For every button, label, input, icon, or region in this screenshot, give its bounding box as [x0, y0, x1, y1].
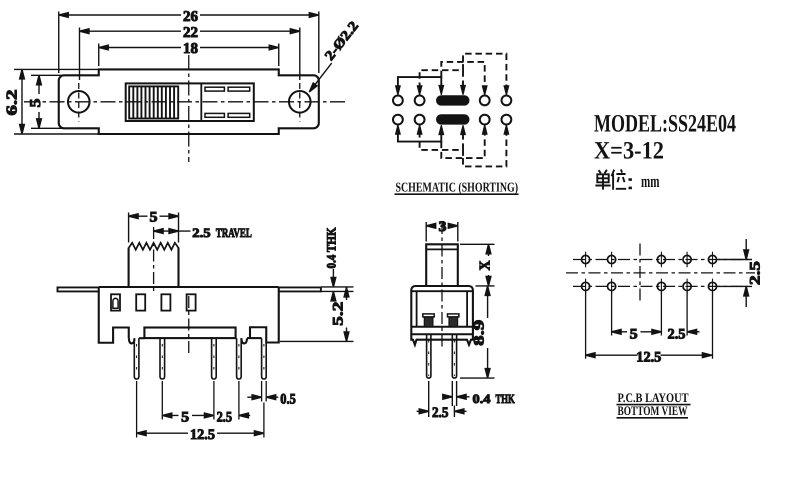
svg-text:22: 22 — [183, 25, 198, 41]
svg-text:26: 26 — [183, 9, 199, 25]
svg-text:8.9: 8.9 — [472, 320, 488, 346]
svg-text:TRAVEL: TRAVEL — [216, 226, 252, 240]
svg-text:0.4: 0.4 — [473, 392, 492, 406]
svg-text:mm: mm — [641, 171, 660, 191]
svg-text:5.2: 5.2 — [330, 302, 346, 326]
svg-text:THK: THK — [496, 392, 515, 406]
svg-text:6.2: 6.2 — [5, 90, 21, 116]
svg-text:BOTTOM VIEW: BOTTOM VIEW — [618, 403, 688, 418]
svg-text:12.5: 12.5 — [636, 350, 661, 366]
svg-text:X=3-12: X=3-12 — [594, 138, 664, 165]
svg-text:2.5: 2.5 — [668, 326, 686, 342]
svg-text:5: 5 — [150, 209, 158, 225]
svg-text:X: X — [478, 260, 494, 270]
svg-text:5: 5 — [630, 326, 638, 342]
svg-text:5: 5 — [181, 409, 189, 425]
svg-text:3: 3 — [439, 219, 447, 235]
svg-text:2.5: 2.5 — [748, 261, 764, 285]
svg-text:2.5: 2.5 — [192, 226, 210, 240]
svg-text:2-Ø2.2: 2-Ø2.2 — [322, 18, 362, 63]
svg-text:MODEL:SS24E04: MODEL:SS24E04 — [594, 111, 736, 138]
svg-text:0.5: 0.5 — [280, 392, 296, 408]
svg-text:2.5: 2.5 — [217, 409, 233, 425]
svg-text:2.5: 2.5 — [432, 405, 449, 421]
svg-text:12.5: 12.5 — [190, 427, 215, 443]
svg-text:5: 5 — [28, 99, 44, 108]
svg-text:SCHEMATIC (SHORTING): SCHEMATIC (SHORTING) — [396, 180, 519, 195]
svg-text:0.4 THK: 0.4 THK — [324, 227, 338, 268]
svg-text:18: 18 — [183, 41, 198, 57]
